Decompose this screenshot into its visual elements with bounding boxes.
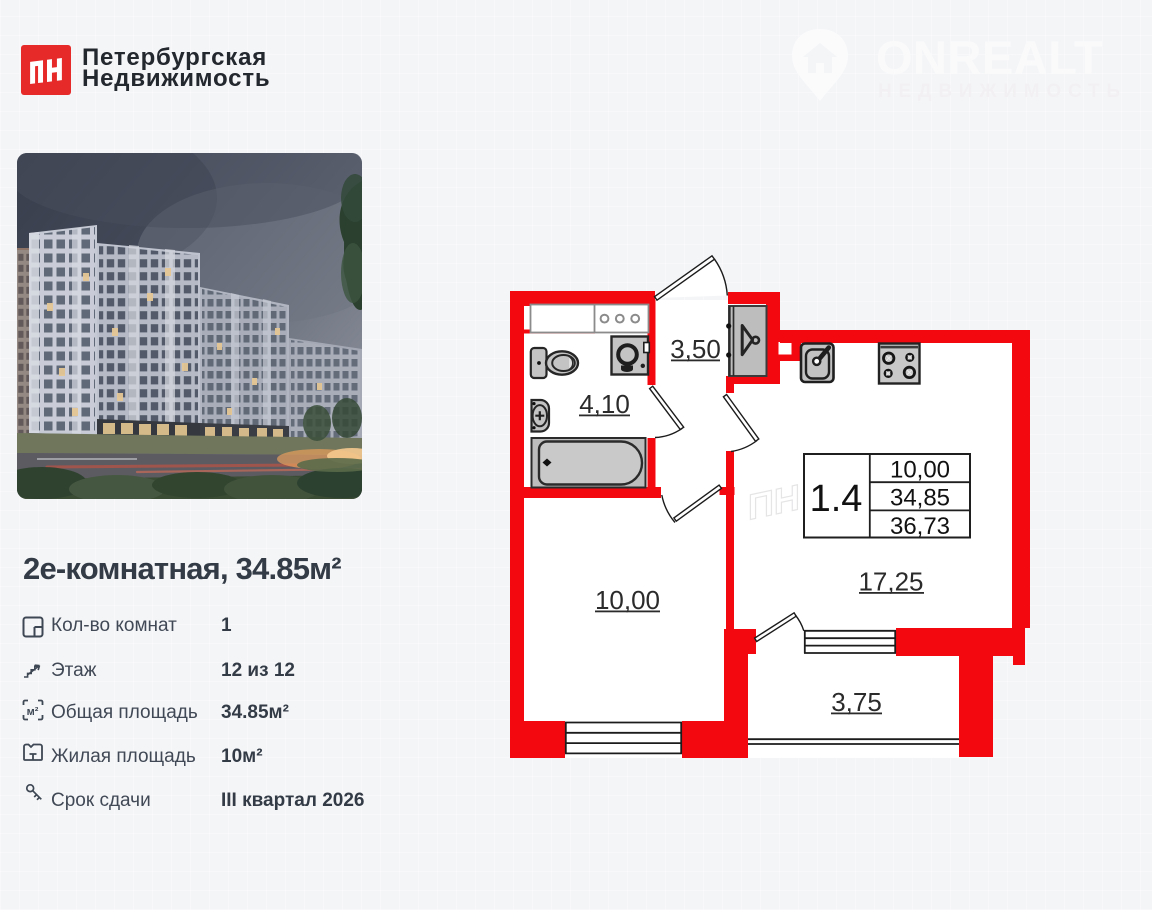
svg-text:10,00: 10,00 [890, 457, 950, 484]
svg-text:м²: м² [27, 706, 39, 718]
svg-text:1.4: 1.4 [810, 478, 863, 520]
svg-text:36,73: 36,73 [890, 513, 950, 540]
svg-text:34,85: 34,85 [890, 485, 950, 512]
